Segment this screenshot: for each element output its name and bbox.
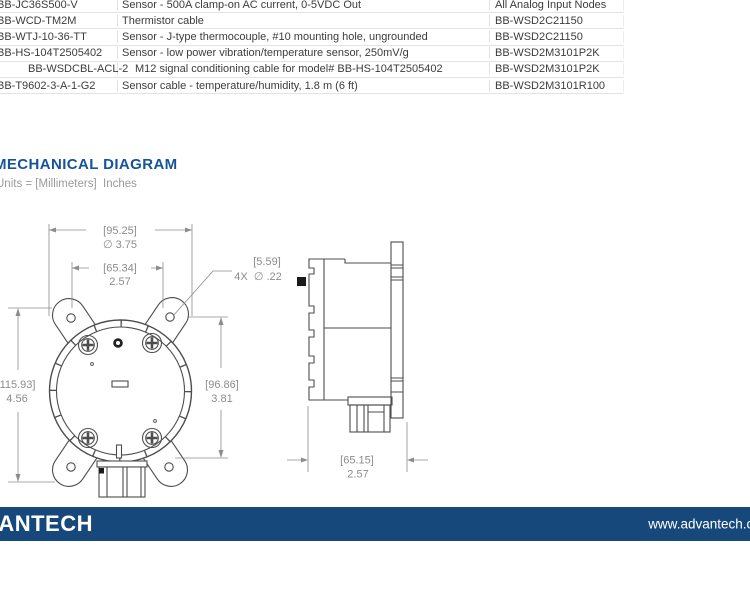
table-row: BB-WSDCBL-ACL-2 M12 signal conditioning …	[0, 62, 624, 78]
dim-hole-spacing-mm: [65.34]	[103, 263, 137, 275]
dim-outer-diameter-in: ∅ 3.75	[103, 239, 137, 251]
advantech-logo: ADVANTECH	[0, 511, 93, 537]
dim-outer-diameter-mm: [95.25]	[103, 225, 137, 237]
table-row: BB-HS-104T2505402 Sensor - low power vib…	[0, 46, 624, 62]
dim-mount-hole-diameter-mm: [5.59]	[253, 256, 281, 268]
compatible-node-cell: BB-WSD2C21150	[490, 15, 624, 27]
dim-mount-hole-diameter-in: 4X ∅ .22	[234, 271, 282, 283]
part-number-cell: BB-WCD-TM2M	[0, 15, 118, 27]
dim-body-height-mm: [96.86]	[205, 379, 239, 391]
dim-depth-mm: [65.15]	[340, 455, 374, 467]
part-number-cell: BB-JC36S500-V	[0, 0, 118, 11]
description-cell: Thermistor cable	[118, 15, 490, 27]
compatible-node-cell: BB-WSD2M3101P2K	[490, 47, 624, 59]
side-body-outline	[309, 259, 391, 400]
dim-body-height-in: 3.81	[211, 393, 232, 405]
description-cell: Sensor - 500A clamp-on AC current, 0-5VD…	[118, 0, 490, 11]
part-number-cell: BB-T9602-3-A-1-G2	[0, 80, 118, 92]
footer-bar: ADVANTECH www.advantech.com	[0, 507, 750, 541]
table-row: BB-JC36S500-V Sensor - 500A clamp-on AC …	[0, 0, 624, 13]
side-set-screw	[297, 277, 306, 286]
table-row: BB-WTJ-10-36-TT Sensor - J-type thermoco…	[0, 29, 624, 45]
front-view	[46, 291, 195, 497]
description-cell: Sensor cable - temperature/humidity, 1.8…	[118, 80, 490, 92]
side-view	[297, 242, 403, 432]
footer-url[interactable]: www.advantech.com	[648, 517, 750, 532]
description-cell: Sensor - low power vibration/temperature…	[118, 47, 490, 59]
compatible-node-cell: All Analog Input Nodes	[490, 0, 624, 11]
dim-overall-height-mm: [115.93]	[0, 379, 35, 391]
part-number-cell: BB-WTJ-10-36-TT	[0, 31, 118, 43]
mechanical-diagram: [95.25] ∅ 3.75 [65.34] 2.57 [5.59] 4X ∅ …	[0, 210, 470, 510]
front-connector	[97, 461, 147, 497]
part-number-cell: BB-HS-104T2505402	[0, 47, 118, 59]
section-title: MECHANICAL DIAGRAM	[0, 156, 178, 173]
ordering-table: BB-JC36S500-V Sensor - 500A clamp-on AC …	[0, 0, 624, 94]
units-note: Units = [Millimeters] Inches	[0, 178, 137, 190]
table-row: BB-T9602-3-A-1-G2 Sensor cable - tempera…	[0, 78, 624, 94]
dim-hole-spacing-in: 2.57	[109, 276, 130, 288]
bottom-tab	[117, 445, 122, 458]
datasheet-page: BB-JC36S500-V Sensor - 500A clamp-on AC …	[0, 0, 750, 591]
compatible-node-cell: BB-WSD2M3101P2K	[490, 63, 624, 75]
table-row: BB-WCD-TM2M Thermistor cable BB-WSD2C211…	[0, 13, 624, 29]
part-number-cell: BB-WSDCBL-ACL-2	[0, 63, 118, 75]
compatible-node-cell: BB-WSD2C21150	[490, 31, 624, 43]
dim-overall-height-in: 4.56	[6, 393, 27, 405]
description-cell: Sensor - J-type thermocouple, #10 mounti…	[118, 31, 490, 43]
dim-depth-in: 2.57	[347, 469, 368, 481]
description-cell: M12 signal conditioning cable for model#…	[118, 63, 490, 75]
side-connector	[348, 397, 392, 432]
compatible-node-cell: BB-WSD2M3101R100	[490, 80, 624, 92]
